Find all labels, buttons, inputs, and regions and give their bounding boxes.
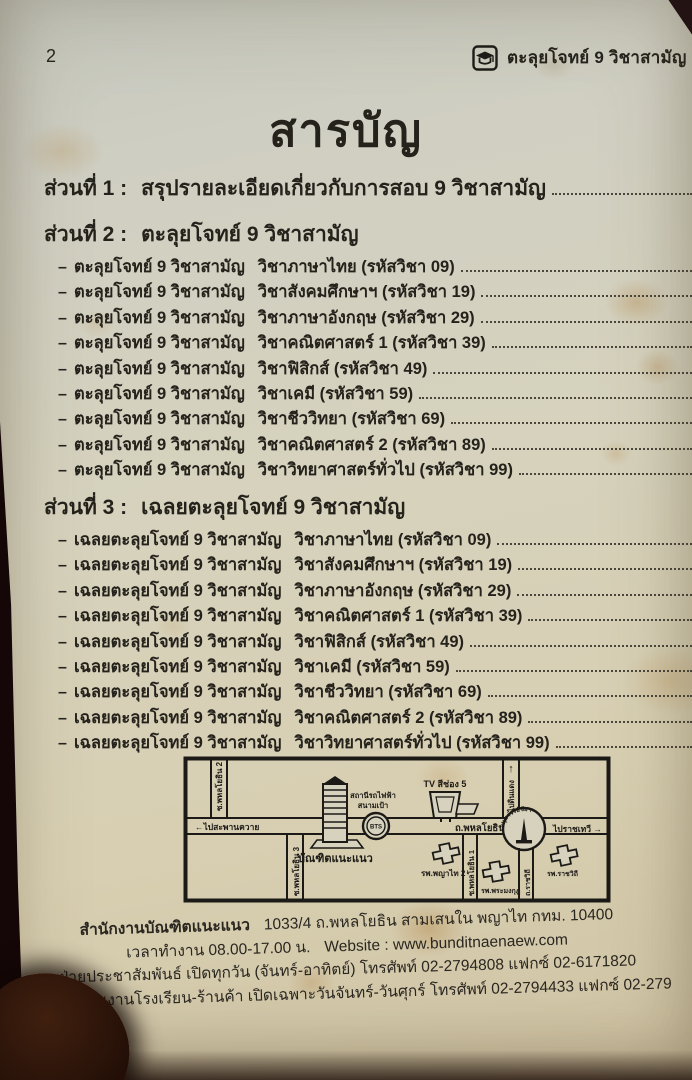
section-label: ส่วนที่ 2 : [44,218,127,251]
page-title: สารบัญ [0,94,692,166]
entry-prefix: เฉลยตะลุยโจทย์ 9 วิชาสามัญ [74,527,281,553]
entry-prefix: เฉลยตะลุยโจทย์ 9 วิชาสามัญ [74,679,281,705]
dot-leader [519,473,692,475]
toc-entry: –เฉลยตะลุยโจทย์ 9 วิชาสามัญวิชาภาษาไทย (… [58,527,692,552]
dot-leader [552,193,692,195]
dot-leader [451,422,692,424]
entry-subject: วิชาคณิตศาสตร์ 2 (รหัสวิชา 89) [294,705,522,731]
toc-entry: –เฉลยตะลุยโจทย์ 9 วิชาสามัญวิชาเคมี (รหั… [58,654,692,679]
page-number: 2 [46,46,56,67]
entry-subject: วิชาเคมี (รหัสวิชา 59) [258,381,413,407]
office-name: สำนักงานบัณฑิตแนะแนว [79,917,250,939]
dash: – [58,583,74,601]
hospital-phyathai-label: รพ.พญาไท 2 [421,868,466,879]
dot-leader [492,346,692,348]
toc-entry: –ตะลุยโจทย์ 9 วิชาสามัญวิชาวิทยาศาสตร์ทั… [58,457,692,482]
road-label-soi1: ซ.พหลโยธิน 1 [466,850,476,896]
entry-prefix: ตะลุยโจทย์ 9 วิชาสามัญ [74,279,245,305]
dash: – [58,361,74,379]
building-label: บัณฑิตแนะแนว [298,852,373,865]
dot-leader [481,295,692,297]
entry-prefix: ตะลุยโจทย์ 9 วิชาสามัญ [74,432,245,458]
entry-prefix: เฉลยตะลุยโจทย์ 9 วิชาสามัญ [74,654,281,680]
dash: – [58,259,74,277]
tv-label: TV สีช่อง 5 [424,779,467,789]
dot-leader [461,270,692,272]
dash: – [58,532,74,550]
bts-station-label-1: สถานีรถไฟฟ้า [350,790,396,800]
section-2-items: –ตะลุยโจทย์ 9 วิชาสามัญวิชาภาษาไทย (รหัส… [58,254,692,483]
dot-leader [488,695,692,697]
section-title: ตะลุยโจทย์ 9 วิชาสามัญ [141,218,358,251]
dot-leader [528,721,692,723]
entry-prefix: เฉลยตะลุยโจทย์ 9 วิชาสามัญ [74,603,281,629]
toc-entry: –ตะลุยโจทย์ 9 วิชาสามัญวิชาภาษาอังกฤษ (ร… [58,305,692,330]
dash: – [58,437,74,455]
dash: – [58,684,74,702]
dot-leader [433,372,692,374]
section-title: สรุปรายละเอียดเกี่ยวกับการสอบ 9 วิชาสามั… [141,172,546,205]
bts-station-label-2: สนามเป้า [358,801,388,810]
section-label: ส่วนที่ 3 : [44,491,127,524]
entry-prefix: ตะลุยโจทย์ 9 วิชาสามัญ [74,305,245,331]
dash: – [58,735,74,753]
entry-subject: วิชาภาษาอังกฤษ (รหัสวิชา 29) [258,305,475,331]
main-road-label: ถ.พหลโยธิน [455,822,505,834]
dash: – [58,557,74,575]
toc-entry: –ตะลุยโจทย์ 9 วิชาสามัญวิชาภาษาไทย (รหัส… [58,254,692,279]
hospital-phyathai-icon [431,841,460,865]
road-label-ratchawithi: ถ.ราชวิถี [524,869,532,896]
entry-subject: วิชาคณิตศาสตร์ 1 (รหัสวิชา 39) [294,603,522,629]
dot-leader [556,746,692,748]
dot-leader [517,594,692,596]
dot-leader [518,568,692,570]
entry-subject: วิชาคณิตศาสตร์ 2 (รหัสวิชา 89) [258,432,486,458]
toc-entry: –เฉลยตะลุยโจทย์ 9 วิชาสามัญวิชาสังคมศึกษ… [58,552,692,577]
hospital-phramongkut-icon [482,860,511,883]
dash: – [58,710,74,728]
dot-leader [481,321,692,323]
toc-entry: –ตะลุยโจทย์ 9 วิชาสามัญวิชาสังคมศึกษาฯ (… [58,279,692,304]
entry-subject: วิชาคณิตศาสตร์ 1 (รหัสวิชา 39) [258,330,486,356]
direction-saphankhwai: ←ไปสะพานควาย [195,822,259,832]
entry-prefix: เฉลยตะลุยโจทย์ 9 วิชาสามัญ [74,629,281,655]
building-roof [323,776,347,784]
graduation-cap-icon [472,45,498,71]
office-hours: เวลาทำงาน 08.00-17.00 น. [126,939,311,961]
entry-prefix: เฉลยตะลุยโจทย์ 9 วิชาสามัญ [74,730,281,756]
entry-subject: วิชาเคมี (รหัสวิชา 59) [294,654,449,680]
direction-dindaeng: ไปดินแดง [506,780,516,813]
toc-entry: –ตะลุยโจทย์ 9 วิชาสามัญวิชาคณิตศาสตร์ 1 … [58,330,692,355]
entry-subject: วิชาฟิสิกส์ (รหัสวิชา 49) [258,356,428,382]
entry-prefix: ตะลุยโจทย์ 9 วิชาสามัญ [74,356,245,382]
dot-leader [456,670,692,672]
entry-subject: วิชาสังคมศึกษาฯ (รหัสวิชา 19) [258,279,476,305]
toc-entry: –เฉลยตะลุยโจทย์ 9 วิชาสามัญวิชาคณิตศาสตร… [58,603,692,628]
hospital-ratchawithi-label: รพ.ราชวิถี [547,870,578,878]
entry-subject: วิชาวิทยาศาสตร์ทั่วไป (รหัสวิชา 99) [294,730,549,756]
dash: – [58,634,74,652]
toc-entry: –ตะลุยโจทย์ 9 วิชาสามัญวิชาชีววิทยา (รหั… [58,406,692,431]
dash: – [58,284,74,302]
header-brand: ตะลุยโจทย์ 9 วิชาสามัญ [472,44,692,71]
entry-subject: วิชาภาษาไทย (รหัสวิชา 09) [294,527,491,553]
section-label: ส่วนที่ 1 : [44,172,127,205]
toc-entry: –ตะลุยโจทย์ 9 วิชาสามัญวิชาคณิตศาสตร์ 2 … [58,432,692,457]
arrow-up: ↑ [508,763,514,775]
dash: – [58,462,74,480]
location-map: ซ.พหลโยธิน 2 ซ.พหลโยธิน 3 ←ไปสะพานควาย บ… [183,756,611,903]
hospital-phramongkut-label: รพ.พระมงกุฎ [481,888,521,895]
toc-entry: –เฉลยตะลุยโจทย์ 9 วิชาสามัญวิชาภาษาอังกฤ… [58,578,692,603]
entry-subject: วิชาสังคมศึกษาฯ (รหัสวิชา 19) [294,552,512,578]
toc-entry: –ตะลุยโจทย์ 9 วิชาสามัญวิชาเคมี (รหัสวิช… [58,381,692,406]
hospital-ratchawithi-icon [549,843,578,867]
section-3-header: ส่วนที่ 3 : เฉลยตะลุยโจทย์ 9 วิชาสามัญ [44,491,692,524]
header-brand-label: ตะลุยโจทย์ 9 วิชาสามัญ [507,44,687,71]
entry-prefix: เฉลยตะลุยโจทย์ 9 วิชาสามัญ [74,552,281,578]
dot-leader [470,645,692,647]
dash: – [58,386,74,404]
toc-entry: –เฉลยตะลุยโจทย์ 9 วิชาสามัญวิชาวิทยาศาสต… [58,730,692,755]
bts-label: BTS [370,825,382,831]
entry-prefix: ตะลุยโจทย์ 9 วิชาสามัญ [74,381,245,407]
scanned-book-page: 2 ตะลุยโจทย์ 9 วิชาสามัญ สารบัญ ส่วนที่ … [0,0,692,1080]
direction-ratchathewi: ไปราชเทวี → [552,824,602,834]
entry-prefix: ตะลุยโจทย์ 9 วิชาสามัญ [74,457,245,483]
dash: – [58,335,74,353]
entry-subject: วิชาชีววิทยา (รหัสวิชา 69) [294,679,481,705]
toc-entry: –ตะลุยโจทย์ 9 วิชาสามัญวิชาฟิสิกส์ (รหัส… [58,356,692,381]
entry-prefix: เฉลยตะลุยโจทย์ 9 วิชาสามัญ [74,578,281,604]
entry-prefix: ตะลุยโจทย์ 9 วิชาสามัญ [74,254,245,280]
dash: – [58,411,74,429]
dot-leader [419,397,692,399]
section-1-header: ส่วนที่ 1 : สรุปรายละเอียดเกี่ยวกับการสอ… [44,172,692,205]
dot-leader [497,543,692,545]
entry-subject: วิชาวิทยาศาสตร์ทั่วไป (รหัสวิชา 99) [258,457,513,483]
section-title: เฉลยตะลุยโจทย์ 9 วิชาสามัญ [141,491,405,524]
entry-subject: วิชาภาษาอังกฤษ (รหัสวิชา 29) [294,578,511,604]
entry-subject: วิชาภาษาไทย (รหัสวิชา 09) [258,254,455,280]
dot-leader [492,448,692,450]
dash: – [58,310,74,328]
entry-subject: วิชาฟิสิกส์ (รหัสวิชา 49) [294,629,464,655]
dash: – [58,608,74,626]
entry-prefix: ตะลุยโจทย์ 9 วิชาสามัญ [74,330,245,356]
dot-leader [528,619,692,621]
building-tower-icon [323,784,347,842]
toc-entry: –เฉลยตะลุยโจทย์ 9 วิชาสามัญวิชาคณิตศาสตร… [58,705,692,730]
dash: – [58,659,74,677]
entry-prefix: เฉลยตะลุยโจทย์ 9 วิชาสามัญ [74,705,281,731]
entry-prefix: ตะลุยโจทย์ 9 วิชาสามัญ [74,406,245,432]
entry-subject: วิชาชีววิทยา (รหัสวิชา 69) [258,406,445,432]
toc-entry: –เฉลยตะลุยโจทย์ 9 วิชาสามัญวิชาชีววิทยา … [58,679,692,704]
section-3-items: –เฉลยตะลุยโจทย์ 9 วิชาสามัญวิชาภาษาไทย (… [58,527,692,756]
section-2-header: ส่วนที่ 2 : ตะลุยโจทย์ 9 วิชาสามัญ [44,218,692,251]
toc-entry: –เฉลยตะลุยโจทย์ 9 วิชาสามัญวิชาฟิสิกส์ (… [58,629,692,654]
road-label-soi2: ซ.พหลโยธิน 2 [214,761,224,811]
